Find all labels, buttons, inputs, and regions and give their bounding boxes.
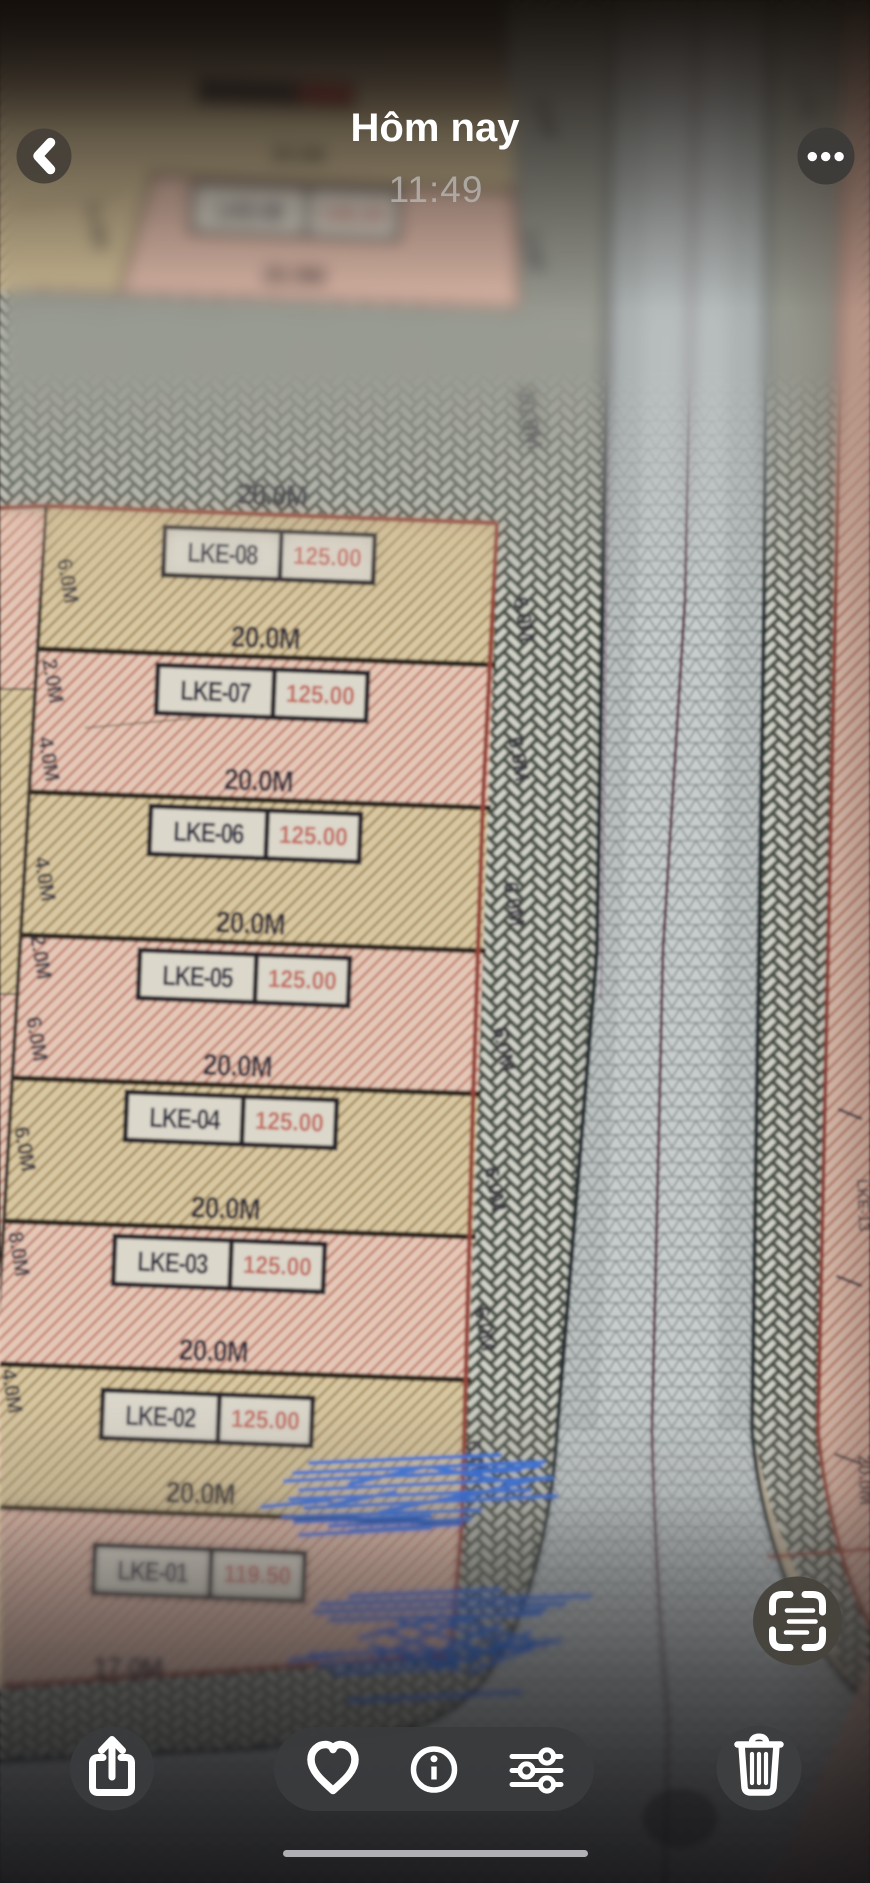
svg-text:Hôm nay: Hôm nay: [351, 106, 521, 150]
svg-text:11:49: 11:49: [389, 169, 484, 210]
